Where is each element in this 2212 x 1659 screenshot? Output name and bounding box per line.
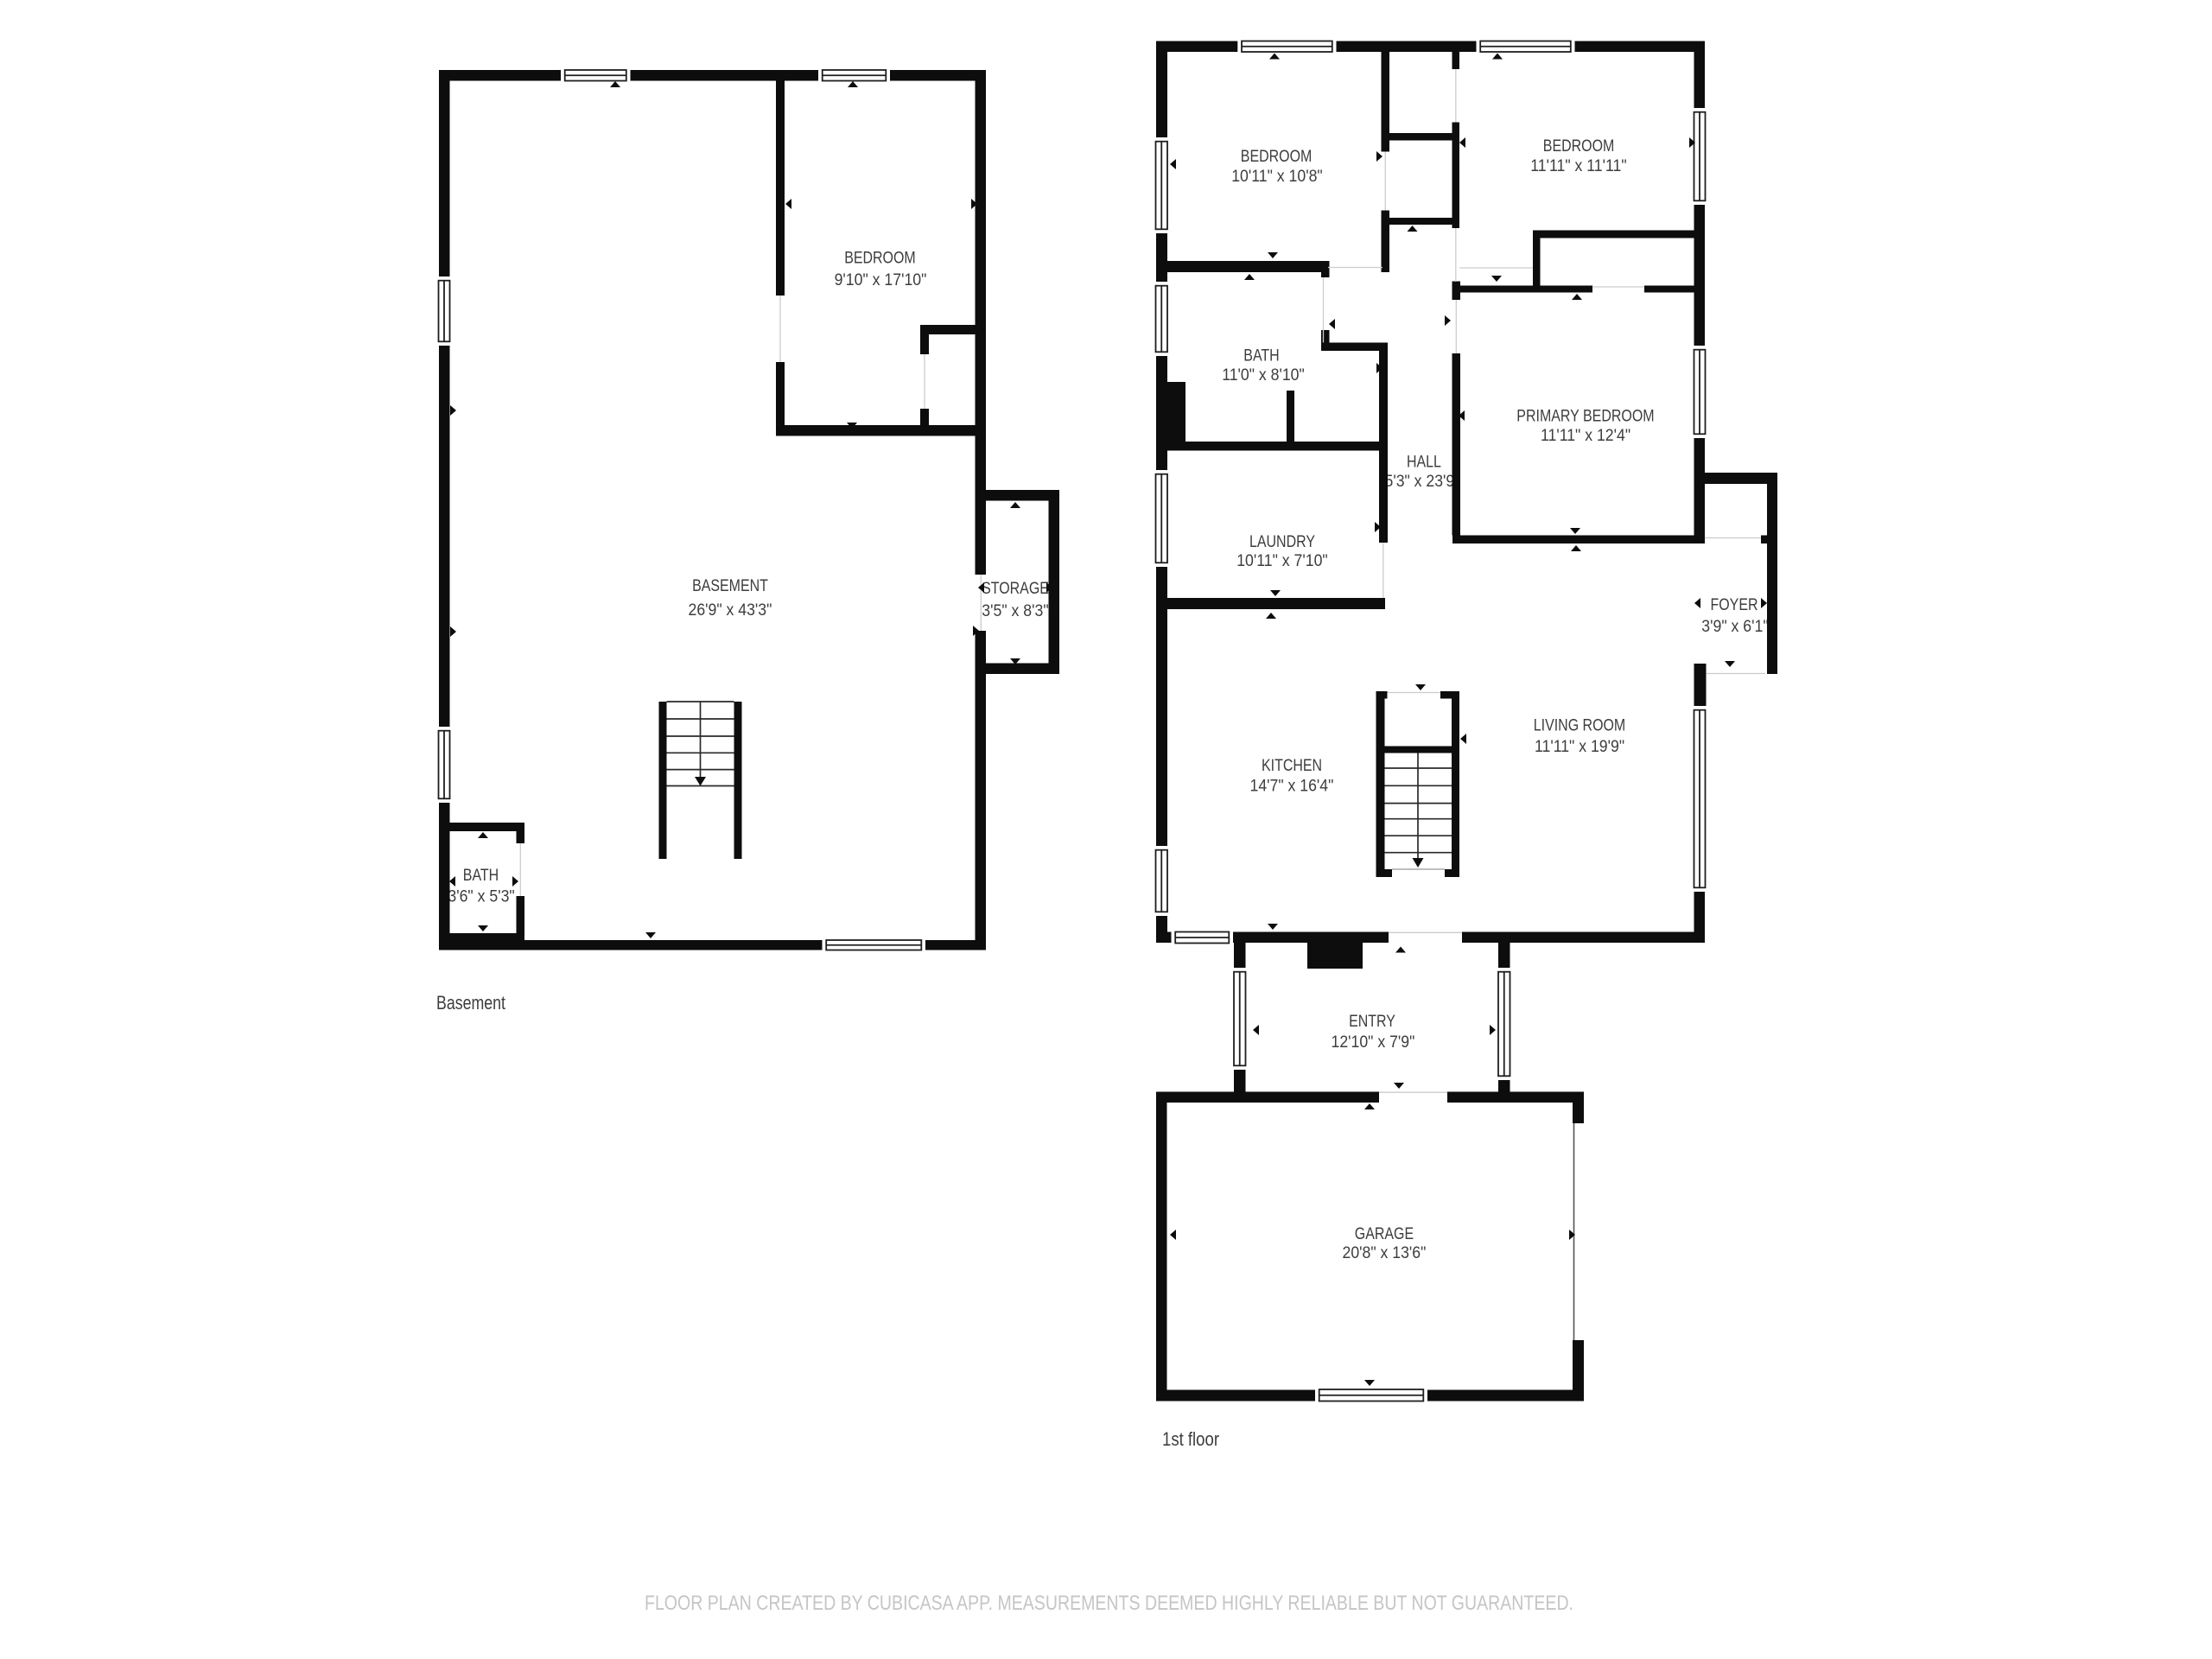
svg-text:Basement: Basement <box>436 992 505 1014</box>
svg-text:HALL: HALL <box>1407 454 1441 472</box>
svg-text:BATH: BATH <box>463 867 499 885</box>
svg-text:3'5" x 8'3": 3'5" x 8'3" <box>982 602 1048 620</box>
svg-text:LAUNDRY: LAUNDRY <box>1249 533 1315 551</box>
svg-text:12'10" x 7'9": 12'10" x 7'9" <box>1332 1033 1415 1052</box>
svg-text:FOYER: FOYER <box>1711 596 1758 614</box>
svg-text:11'11" x 11'11": 11'11" x 11'11" <box>1530 157 1626 175</box>
svg-text:BEDROOM: BEDROOM <box>1543 137 1615 156</box>
svg-text:26'9" x 43'3": 26'9" x 43'3" <box>689 601 772 620</box>
svg-text:ENTRY: ENTRY <box>1349 1013 1395 1031</box>
svg-text:LIVING ROOM: LIVING ROOM <box>1534 717 1625 735</box>
svg-text:1st floor: 1st floor <box>1162 1428 1219 1450</box>
svg-text:KITCHEN: KITCHEN <box>1262 757 1322 775</box>
svg-text:11'11" x 19'9": 11'11" x 19'9" <box>1535 738 1624 756</box>
svg-text:5'3" x 23'9": 5'3" x 23'9" <box>1385 473 1460 491</box>
svg-text:10'11" x 7'10": 10'11" x 7'10" <box>1236 552 1328 570</box>
svg-text:BASEMENT: BASEMENT <box>692 577 768 595</box>
svg-text:PRIMARY BEDROOM: PRIMARY BEDROOM <box>1516 408 1654 426</box>
svg-text:BATH: BATH <box>1243 347 1279 365</box>
svg-text:3'9" x 6'1": 3'9" x 6'1" <box>1701 618 1768 636</box>
svg-text:14'7" x 16'4": 14'7" x 16'4" <box>1250 778 1334 796</box>
svg-text:STORAGE: STORAGE <box>982 580 1049 598</box>
svg-text:10'11" x 10'8": 10'11" x 10'8" <box>1231 168 1323 186</box>
svg-text:20'8" x 13'6": 20'8" x 13'6" <box>1343 1244 1427 1262</box>
svg-text:11'11" x 12'4": 11'11" x 12'4" <box>1541 427 1630 445</box>
svg-text:BEDROOM: BEDROOM <box>844 250 915 268</box>
svg-text:BEDROOM: BEDROOM <box>1241 148 1313 166</box>
svg-text:11'0" x 8'10": 11'0" x 8'10" <box>1222 366 1305 385</box>
svg-text:GARAGE: GARAGE <box>1355 1225 1414 1243</box>
svg-text:3'6" x 5'3": 3'6" x 5'3" <box>448 888 514 906</box>
svg-text:FLOOR PLAN CREATED BY CUBICASA: FLOOR PLAN CREATED BY CUBICASA APP. MEAS… <box>645 1592 1573 1615</box>
svg-text:9'10" x 17'10": 9'10" x 17'10" <box>835 271 927 289</box>
